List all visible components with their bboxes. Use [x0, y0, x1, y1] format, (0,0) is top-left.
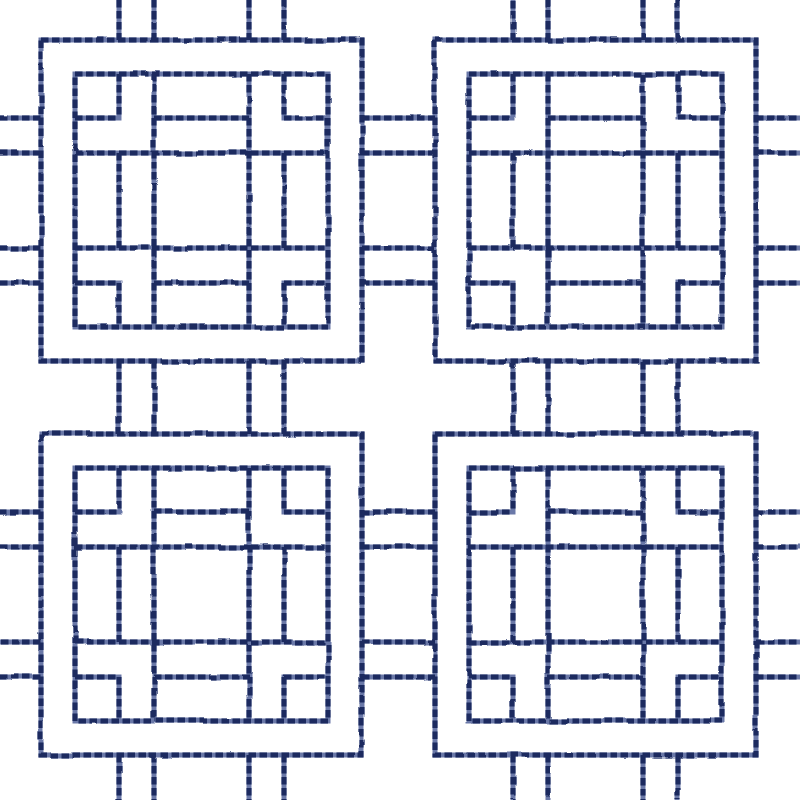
- embroidery-pattern-stage: [0, 0, 800, 800]
- lattice-pattern-svg: [0, 0, 800, 800]
